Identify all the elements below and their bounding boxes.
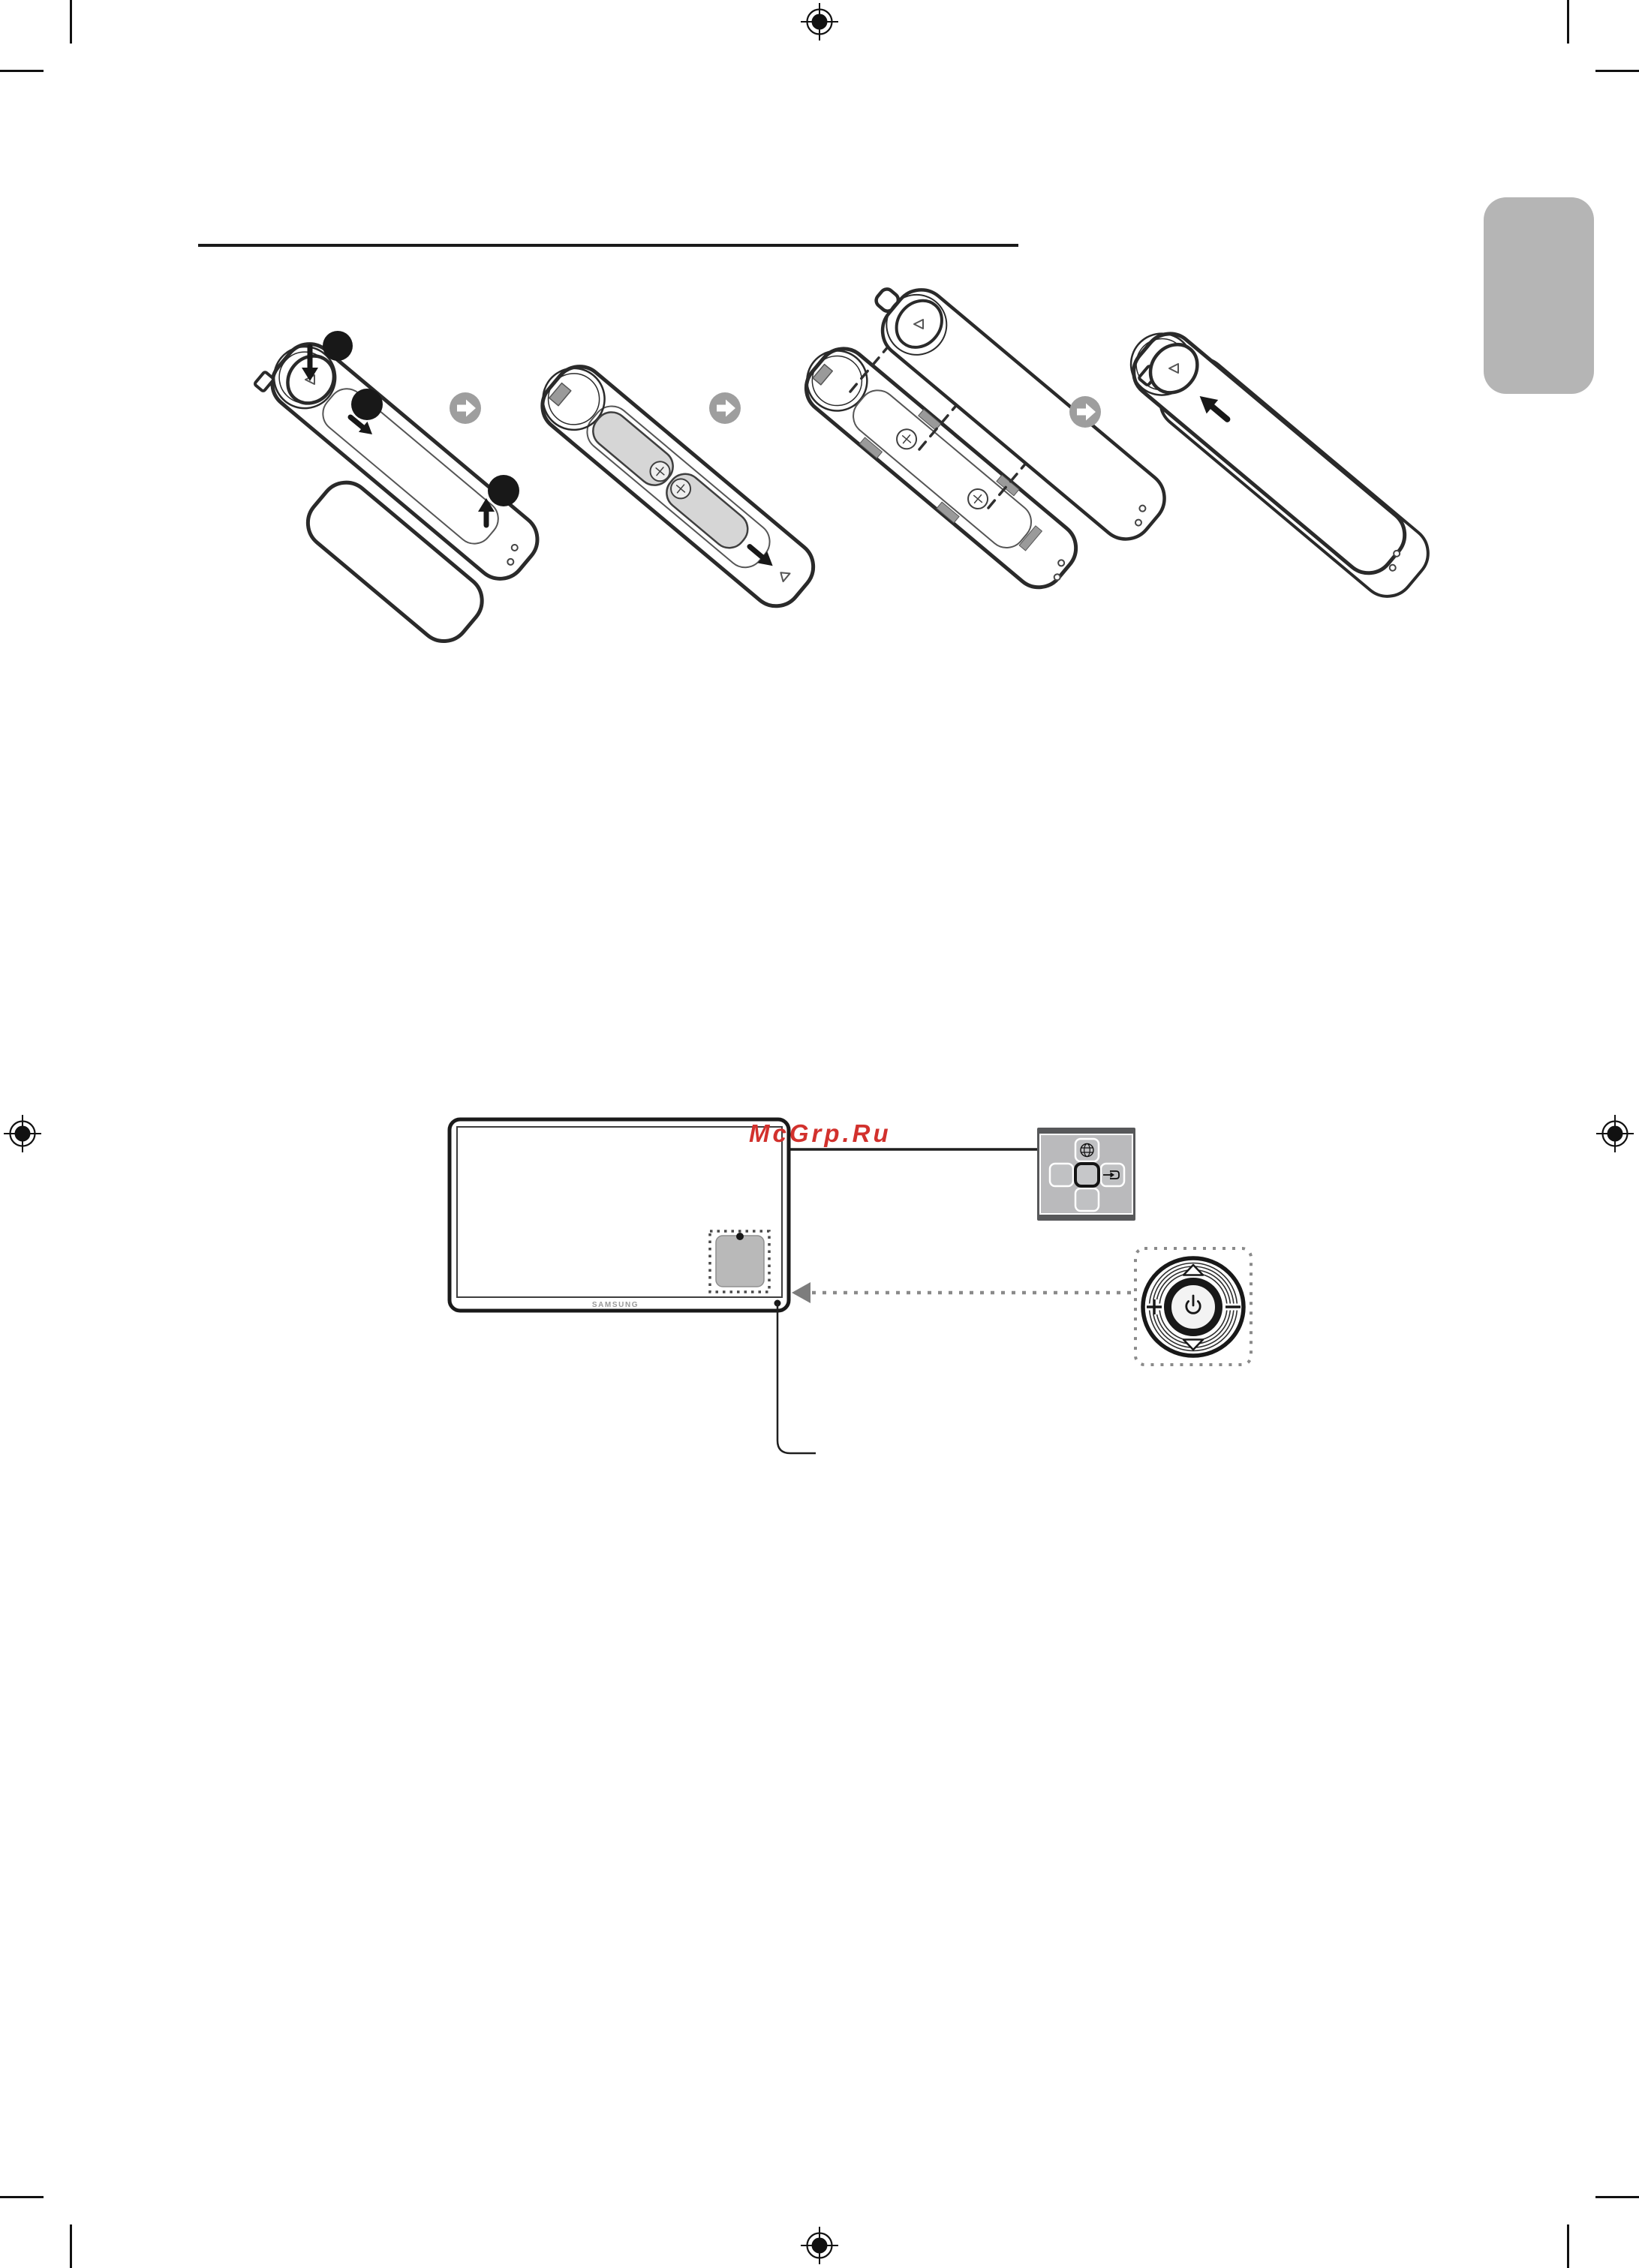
panel-up-button — [1075, 1139, 1099, 1161]
control-panel-callout — [1037, 1128, 1135, 1221]
panel-left-button — [1050, 1164, 1073, 1186]
crop-mark-top-left-h — [0, 70, 44, 72]
left-arrowhead-icon — [792, 1282, 810, 1303]
registration-mark-bottom — [801, 2227, 838, 2264]
battery-step-3 — [792, 266, 1175, 599]
tv-illustration: SAMSUNG — [450, 1119, 816, 1453]
next-step-arrow-icon — [709, 392, 741, 424]
section-rule — [198, 244, 1018, 247]
step-marker-dot — [323, 331, 353, 361]
sensor-leader-dot — [736, 1233, 744, 1240]
crop-mark-top-left-v — [70, 0, 72, 44]
jog-button-pointer — [792, 1282, 1135, 1303]
step-marker-dot — [488, 475, 519, 506]
battery-install-figure — [202, 266, 1439, 653]
crop-mark-top-right-h — [1595, 70, 1639, 72]
next-step-arrow-icon — [450, 392, 481, 424]
crop-mark-bottom-right-h — [1595, 2196, 1639, 2198]
jog-center-ring — [1168, 1281, 1219, 1332]
panel-center-button — [1075, 1164, 1099, 1186]
crop-mark-top-right-v — [1567, 0, 1569, 44]
registration-mark-left — [4, 1115, 41, 1152]
crop-mark-bottom-left-v — [70, 2224, 72, 2268]
remote-sensor-panel — [716, 1236, 764, 1287]
battery-step-2 — [528, 353, 824, 616]
crop-mark-bottom-right-v — [1567, 2224, 1569, 2268]
battery-step-4 — [1113, 317, 1439, 607]
tv-brand-logo: SAMSUNG — [592, 1301, 639, 1309]
battery-step-1 — [202, 329, 548, 653]
watermark: McGrp.Ru — [749, 1119, 892, 1147]
panel-down-button — [1075, 1188, 1099, 1211]
manual-page: SAMSUNG McGrp.Ru — [0, 0, 1639, 2268]
next-step-arrow-icon — [1069, 396, 1101, 428]
crop-mark-bottom-left-h — [0, 2196, 44, 2198]
bezel-leader-line — [777, 1303, 816, 1453]
registration-mark-top — [801, 3, 838, 41]
tv-controller-figure: SAMSUNG McGrp.Ru — [450, 1119, 1251, 1453]
step-marker-dot — [351, 389, 383, 420]
jog-button-callout — [1135, 1248, 1251, 1365]
registration-mark-right — [1596, 1115, 1634, 1152]
chapter-side-tab — [1484, 197, 1594, 394]
